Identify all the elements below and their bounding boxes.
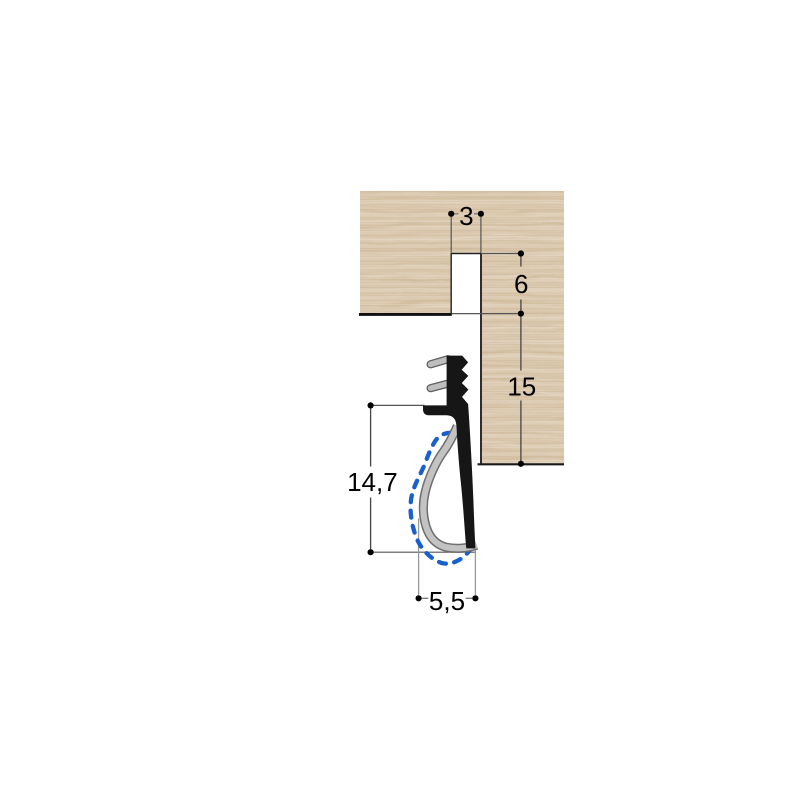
svg-text:15: 15: [507, 371, 536, 401]
svg-text:6: 6: [514, 269, 528, 299]
svg-text:14,7: 14,7: [347, 467, 398, 497]
svg-text:5,5: 5,5: [429, 586, 465, 616]
svg-text:3: 3: [459, 201, 473, 231]
